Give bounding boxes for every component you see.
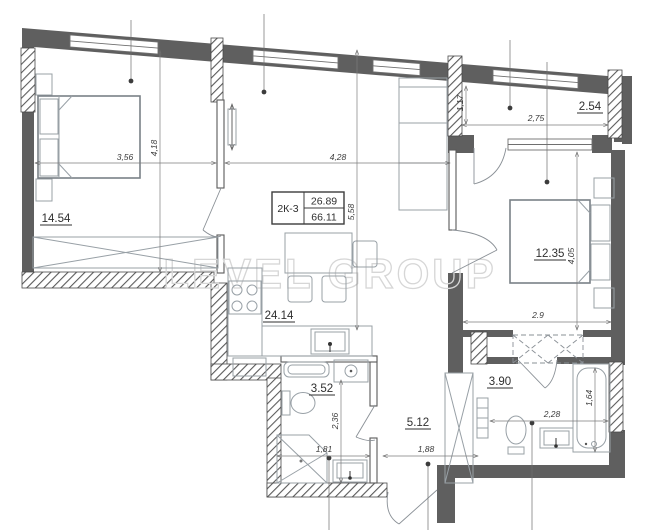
unit-lower-area: 66.11	[311, 212, 337, 224]
floor-plan: LEVEL GROUP	[0, 0, 650, 531]
kitchen-living-furniture	[228, 78, 447, 376]
floor-plan-drawing: LEVEL GROUP	[0, 0, 650, 531]
bathroom-sink	[333, 460, 367, 482]
area-balcony: 2.54	[579, 101, 602, 113]
door-swing	[518, 360, 557, 388]
area-bedroom2: 12.35	[536, 248, 565, 260]
unit-card: 2К-3 26.89 66.11	[272, 192, 344, 224]
bathroom-sink	[540, 428, 573, 448]
nightstand	[36, 179, 52, 201]
area-kitchen-living: 24.14	[265, 310, 294, 322]
dim-bathroom1-depth: 2,36	[330, 412, 340, 430]
nightstand	[36, 74, 52, 95]
dim-balcony-width: 2,75	[527, 113, 545, 123]
dim-hall-width: 1,88	[418, 444, 435, 454]
entrance-door	[387, 490, 437, 524]
sliding-door	[228, 104, 236, 150]
bedroom1-furniture	[33, 74, 236, 268]
bathtub	[573, 364, 610, 452]
bed	[38, 96, 140, 178]
area-bathroom2: 3.90	[489, 376, 511, 388]
dim-bedroom2-width: 2.9	[531, 310, 544, 320]
unit-upper-area: 26.89	[311, 196, 337, 208]
vanity	[284, 362, 329, 377]
area-bedroom1: 14.54	[42, 213, 71, 225]
bed	[510, 200, 610, 283]
door-swing	[356, 405, 375, 441]
dim-bedroom1-depth: 4,18	[149, 139, 159, 156]
bathroom1-fixtures	[277, 360, 375, 483]
washing-machine	[334, 360, 368, 382]
dim-living-depth: 5,58	[346, 203, 356, 220]
towel-radiator	[477, 398, 488, 438]
toilet	[506, 416, 526, 454]
dim-bathtub-length: 1,64	[584, 389, 594, 406]
door-swing	[203, 188, 221, 237]
balcony-door-swing	[474, 148, 506, 184]
dim-living-width: 4,28	[330, 152, 347, 162]
shower	[277, 435, 327, 483]
dim-balcony-depth: 1,17	[455, 94, 465, 111]
tall-cabinet	[399, 78, 447, 210]
unit-code: 2К-3	[277, 203, 298, 215]
windows	[70, 35, 592, 150]
area-bathroom1: 3.52	[311, 383, 333, 395]
dim-bathroom2-width: 2,28	[543, 409, 561, 419]
area-hallway: 5.12	[407, 417, 429, 429]
dim-bedroom1-width: 3,56	[117, 152, 134, 162]
dim-bedroom2-depth: 4,05	[566, 247, 576, 264]
kitchen-sink	[311, 329, 349, 354]
dim-bathroom1-width: 1,81	[316, 444, 333, 454]
